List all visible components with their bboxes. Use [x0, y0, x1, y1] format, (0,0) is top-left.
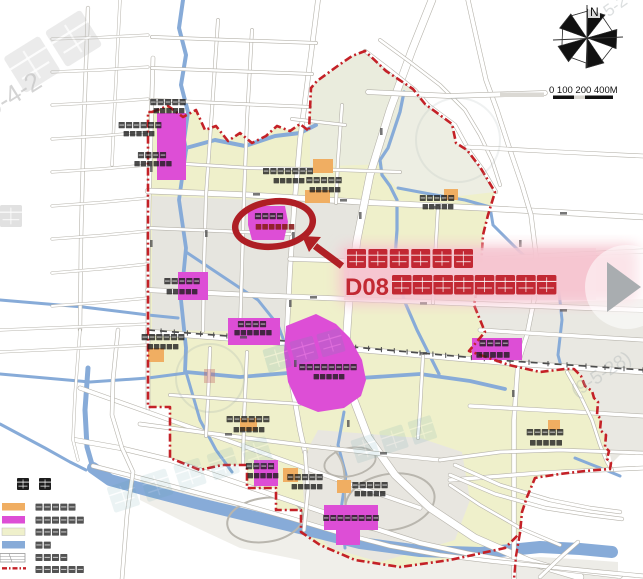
- svg-text:D08: D08: [345, 274, 389, 301]
- svg-text:N: N: [590, 5, 599, 19]
- svg-text:0 100 200 400M: 0 100 200 400M: [549, 85, 618, 96]
